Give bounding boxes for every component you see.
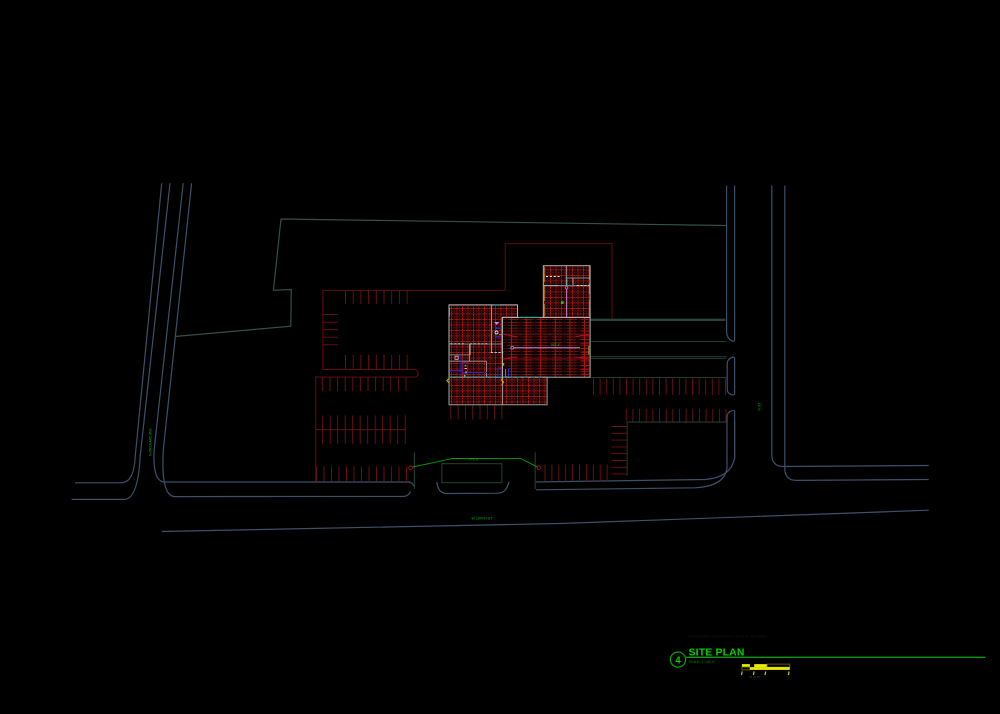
svg-text:15 30 60: 15 30 60 [749, 675, 760, 679]
svg-text:24'-0"R: 24'-0"R [469, 457, 480, 461]
svg-text:4: 4 [675, 656, 681, 667]
svg-text:N ST: N ST [758, 403, 762, 411]
svg-text:163'-4": 163'-4" [551, 343, 561, 347]
svg-text:SCALE: 1"=30'-0": SCALE: 1"=30'-0" [689, 660, 717, 664]
svg-text:W 190TH ST: W 190TH ST [472, 516, 494, 520]
svg-text:N ORCHARD AVE: N ORCHARD AVE [149, 427, 153, 456]
svg-text:G:\PROJECTS\2004\0413 SITE PLA: G:\PROJECTS\2004\0413 SITE PLAN.DWG [688, 634, 767, 639]
